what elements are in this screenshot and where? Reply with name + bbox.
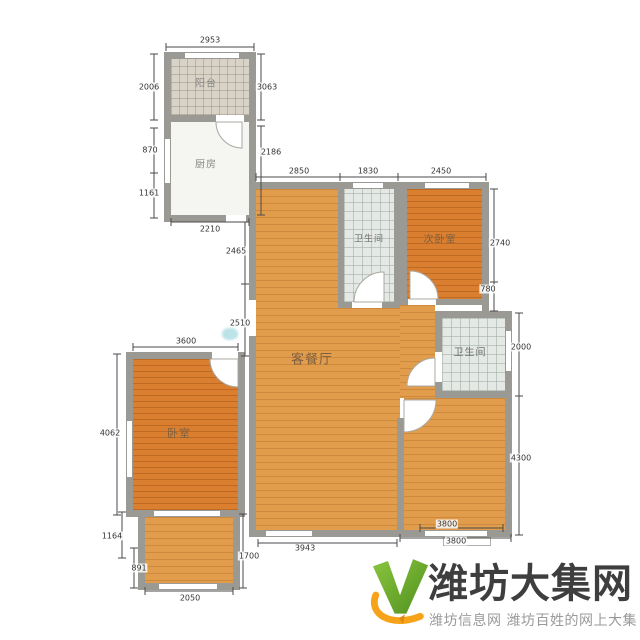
door-arc-bedroom-2 (410, 271, 438, 299)
dimension-value: 1164 (101, 532, 123, 541)
dimension-value: 2510 (229, 319, 251, 328)
door-arc-bathroom-1 (354, 272, 384, 302)
v-check-logo-icon (370, 556, 432, 634)
dimension-value: 870 (141, 146, 158, 155)
dimension-value: 3800 (445, 537, 467, 546)
room-label-kitchen: 厨房 (195, 156, 217, 171)
room-label-living-dining: 客餐厅 (291, 349, 333, 368)
dimension-value: 1161 (138, 189, 160, 198)
dimension-value: 1700 (238, 552, 260, 561)
dimension-value: 3063 (256, 83, 278, 92)
door-arc-master-bedroom (404, 400, 436, 432)
site-watermark: 潍坊大集网 潍坊信息网 潍坊百姓的网上大集 (366, 552, 640, 640)
dimension-value: 2740 (489, 239, 511, 248)
dimension-value: 2006 (138, 83, 160, 92)
room-label-bedroom-2: 次卧室 (424, 231, 457, 246)
dimension-value: 2450 (430, 167, 452, 176)
dimension-value: 2186 (260, 148, 282, 157)
dimension-value: 3943 (294, 544, 316, 553)
room-label-bathroom-1: 卫生间 (354, 232, 384, 245)
watermark-subtitle: 潍坊信息网 潍坊百姓的网上大集 (429, 610, 640, 630)
dimension-value: 4062 (99, 429, 121, 438)
faint-watermark-artifact (222, 328, 238, 340)
dimension-value: 2050 (179, 594, 201, 603)
dimension-value: 2953 (199, 36, 221, 45)
dimension-value: 2210 (199, 225, 221, 234)
door-arc-kitchen (216, 122, 242, 148)
plan-linework (0, 0, 640, 640)
dimension-value: 2465 (225, 247, 247, 256)
dimension-value: 780 (479, 285, 496, 294)
floor-plan: 阳台厨房卫生间次卧室客餐厅卫生间卧室 295320063063870116121… (0, 0, 640, 640)
dimension-value: 2000 (510, 343, 532, 352)
logo-v (372, 558, 429, 614)
dimension-value: 2850 (288, 167, 310, 176)
door-arc-bathroom-2 (407, 358, 435, 386)
dimension-value: 1830 (357, 167, 379, 176)
dimension-value: 891 (130, 564, 147, 573)
dimension-value: 3600 (175, 337, 197, 346)
dimension-value: 4300 (510, 454, 532, 463)
room-label-balcony-top: 阳台 (195, 75, 217, 90)
room-label-bathroom-2: 卫生间 (454, 344, 487, 359)
door-arc-bedroom-1 (210, 359, 238, 387)
floorplan-image: 阳台厨房卫生间次卧室客餐厅卫生间卧室 295320063063870116121… (0, 0, 640, 640)
watermark-title: 潍坊大集网 (428, 562, 640, 606)
dimension-value: 3800 (436, 520, 458, 529)
room-label-bedroom-1: 卧室 (167, 425, 191, 441)
